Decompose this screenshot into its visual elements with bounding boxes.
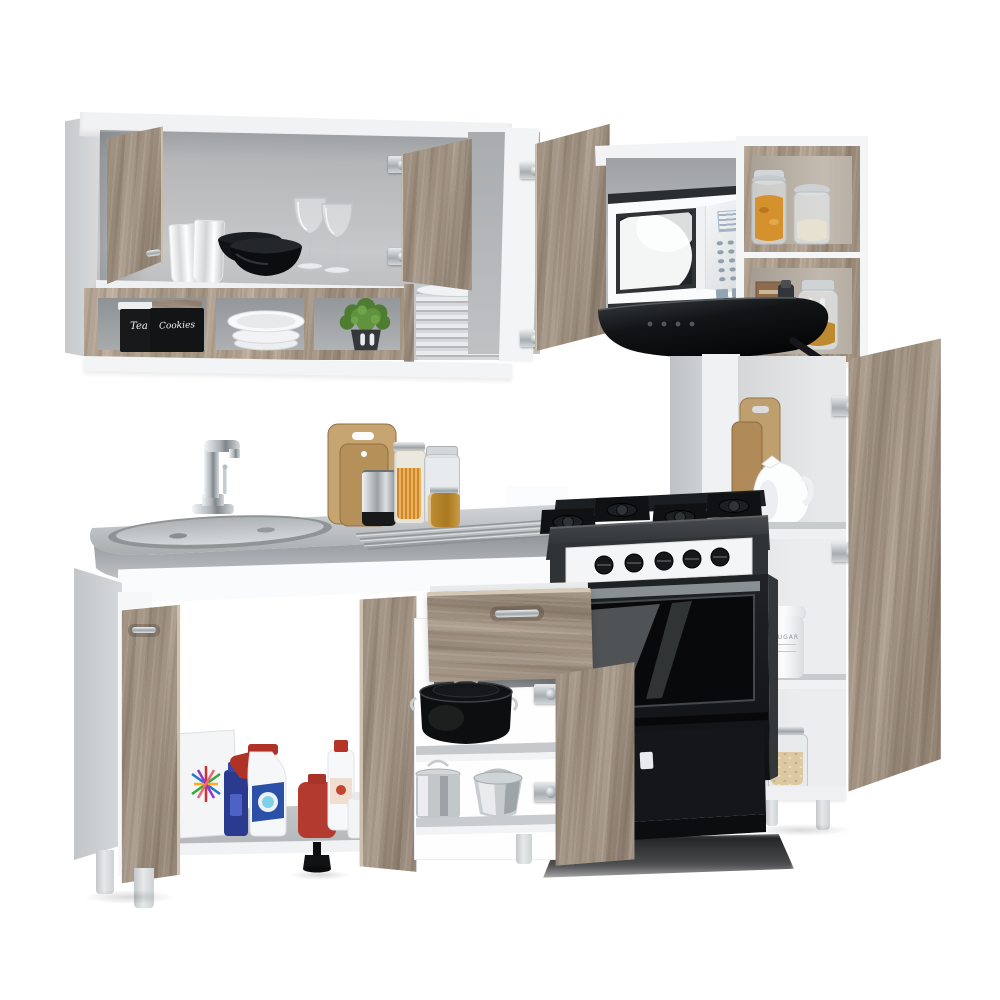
cookies-canister: Cookies: [150, 308, 204, 352]
kitchen-set-photo: Tea Cookies: [0, 0, 1000, 1000]
steel-pot-and-kettle: [410, 752, 528, 826]
wine-glasses: [290, 196, 362, 282]
faucet: [182, 434, 246, 518]
base-left-side-panel: [74, 562, 122, 860]
cookies-label: Cookies: [150, 320, 204, 332]
open-drawer-front: [427, 588, 593, 682]
cabinet-door-open: [104, 120, 166, 284]
base-door-open: [116, 602, 182, 886]
drawer-handle: [495, 609, 539, 617]
cabinet-leg: [516, 834, 532, 864]
base-door-open: [548, 660, 644, 872]
door-handle: [132, 627, 156, 633]
amber-jar: [428, 493, 460, 527]
cabinet-door-open: [398, 134, 474, 292]
pepper-grinder: [362, 470, 396, 516]
pepper-grinder-base: [362, 512, 396, 526]
potted-plant: [326, 296, 402, 354]
pantry-door-open: [840, 334, 946, 796]
floor-shadow: [84, 890, 174, 904]
pasta-jars: [746, 158, 858, 250]
hinge: [534, 684, 558, 704]
floor-shadow: [290, 870, 350, 880]
black-stock-pot: [410, 676, 518, 750]
white-bowl-stack: [224, 304, 308, 352]
spice-jar-contents: [397, 468, 421, 519]
cabinet-leg: [96, 850, 114, 894]
plates-nook-divider: [404, 284, 414, 362]
hinge: [534, 782, 558, 802]
